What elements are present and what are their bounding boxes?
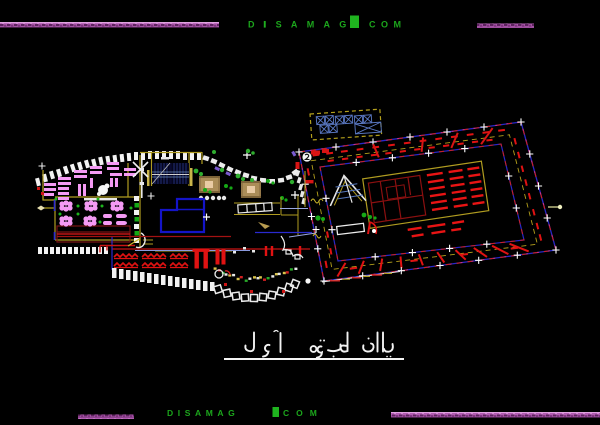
svg-text:COM: COM (283, 408, 324, 418)
svg-text:DISAMAG: DISAMAG (167, 408, 239, 418)
svg-text:COM: COM (369, 20, 407, 30)
